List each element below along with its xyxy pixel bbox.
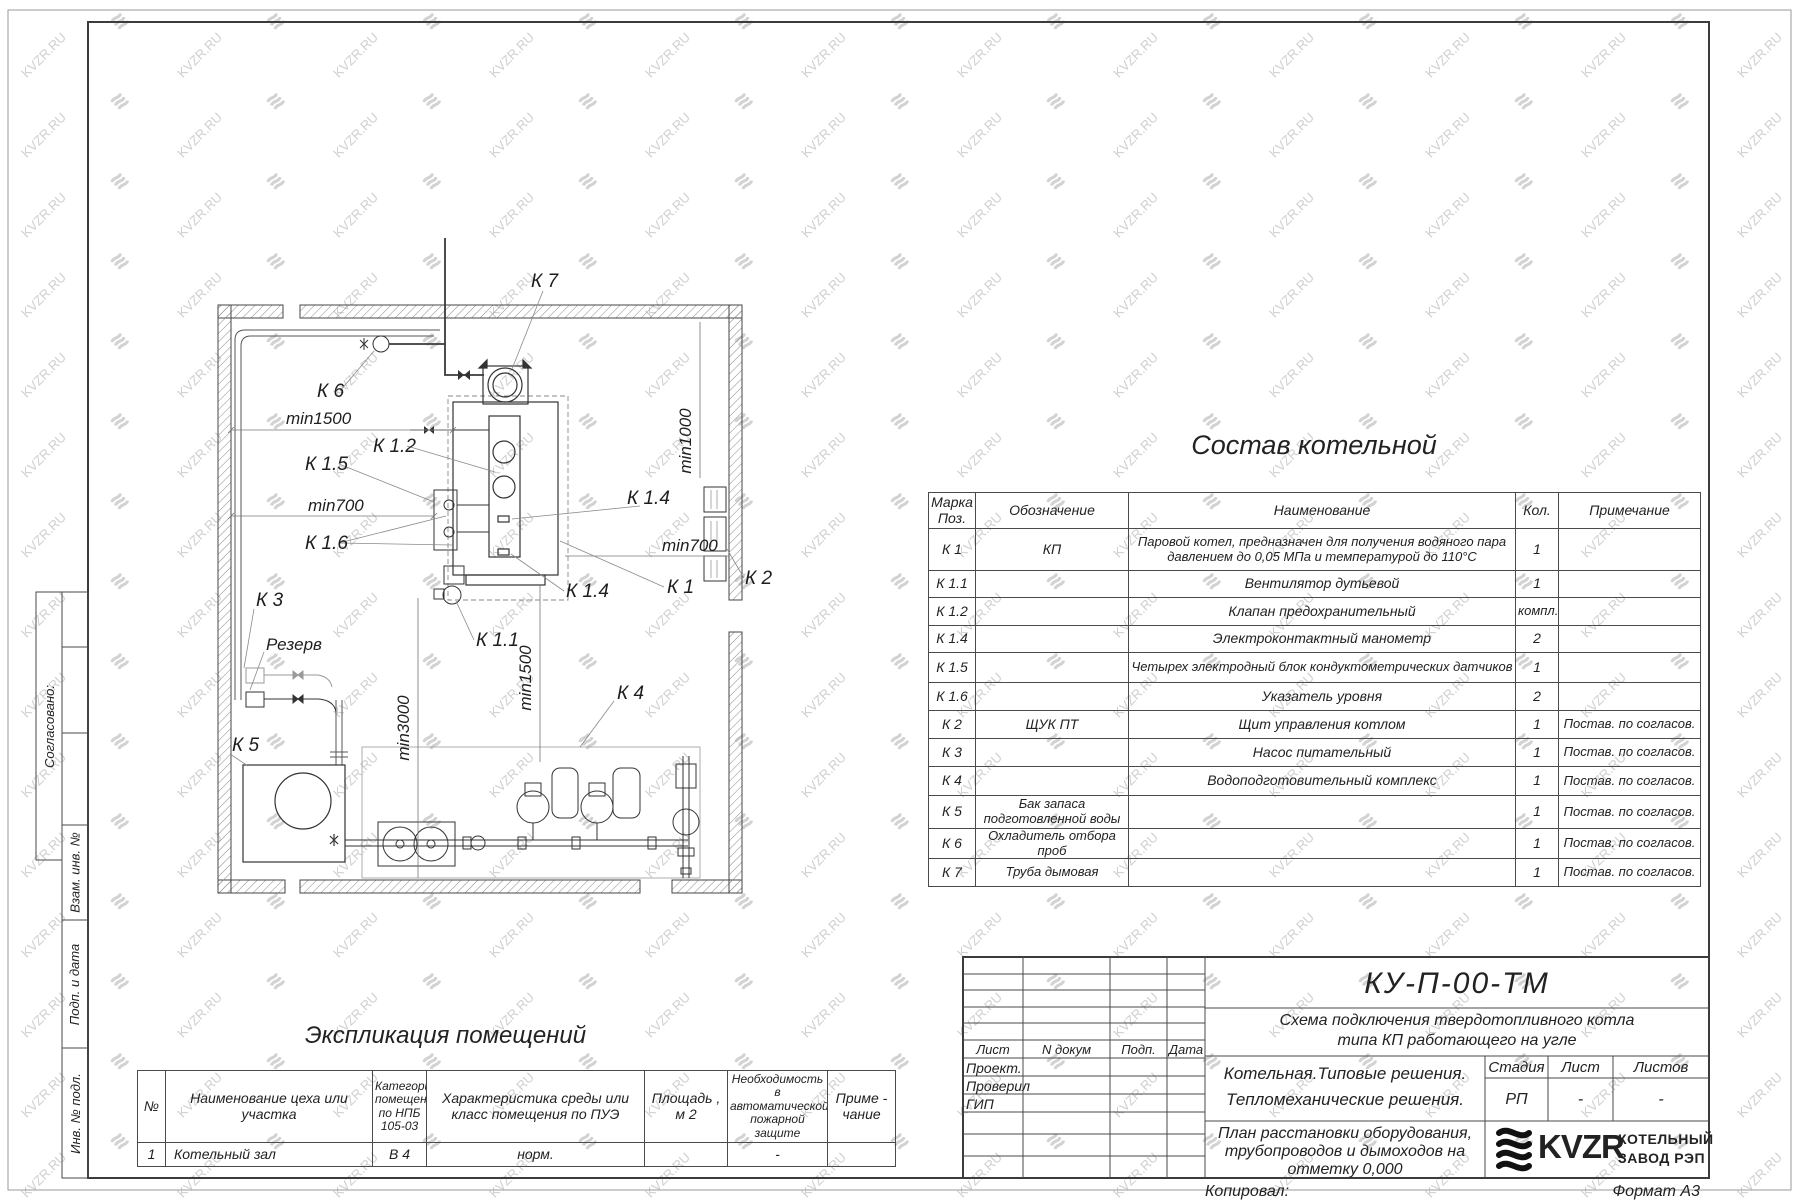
explication-table: № Наименование цеха или участка Категори…	[137, 1070, 896, 1167]
object-line1: Котельная.Типовые решения.	[1205, 1064, 1485, 1084]
col-header: Площадь , м 2	[645, 1071, 728, 1143]
brand-line1: КОТЕЛЬНЫЙ	[1618, 1131, 1714, 1149]
plan-label: К 2	[745, 568, 772, 589]
plan-label: К 1.5	[305, 454, 348, 475]
table-row: К 1.6Указатель уровня2	[929, 683, 1701, 711]
kvzr-logo-icon	[1494, 1127, 1536, 1173]
col-header: Характеристика среды или класс помещения…	[427, 1071, 645, 1143]
table-row: К 4Водоподготовительный комплекс1Постав.…	[929, 767, 1701, 796]
plan-label: К 6	[317, 381, 344, 402]
col-header: Примечание	[1559, 493, 1701, 529]
scheme-title-line2: типа КП работающего на угле	[1205, 1031, 1709, 1050]
plan-dimension: min1500	[516, 645, 535, 711]
water-tank	[243, 765, 345, 862]
format-label: Формат А3	[1560, 1182, 1700, 1201]
explication-title: Экспликация помещений	[305, 1022, 586, 1050]
stage-value: РП	[1485, 1090, 1548, 1109]
col-header: Приме - чание	[828, 1071, 896, 1143]
role-gip: ГИП	[966, 1096, 994, 1113]
sheet-title-line3: отметку 0,000	[1205, 1160, 1485, 1179]
table-row: К 2ЩУК ПТЩит управления котлом1Постав. п…	[929, 711, 1701, 739]
col-header: Необходимость в автоматической пожарной …	[728, 1071, 828, 1143]
vzam-label: Взам. инв. №	[68, 832, 83, 912]
role-project: Проект.	[966, 1060, 1022, 1077]
col-header: Наименование	[1129, 493, 1516, 529]
plan-label: К 1.1	[476, 630, 519, 651]
table-row: К 5Бак запаса подготовленной воды1Постав…	[929, 796, 1701, 829]
logo-wordmark: KVZR	[1538, 1126, 1624, 1167]
plan-label: К 1.4	[566, 581, 609, 602]
table-row: К 7Труба дымовая1Постав. по согласов.	[929, 859, 1701, 887]
plan-dimension: min700	[662, 536, 718, 555]
table-row: К 1.4Электроконтактный манометр2	[929, 626, 1701, 653]
col-header: Категория помещения по НПБ 105-03	[373, 1071, 427, 1143]
fan	[434, 566, 464, 604]
composition-title: Состав котельной	[928, 430, 1700, 461]
brand-line2: ЗАВОД РЭП	[1618, 1150, 1705, 1168]
doc-number: КУ-П-00-ТМ	[1205, 966, 1709, 1002]
explication-header-row: № Наименование цеха или участка Категори…	[138, 1071, 896, 1143]
clearance-outline	[448, 396, 568, 600]
composition-header-row: Марка Поз. Обозначение Наименование Кол.…	[929, 493, 1701, 529]
plan-dimension: min1000	[676, 408, 695, 474]
plan-dimension: min1500	[286, 409, 352, 428]
floor-plan: К 7 К 6 min1500 К 1.2 К 1.5 min700 К 1.6…	[140, 215, 860, 935]
object-line2: Тепломеханические решения.	[1205, 1090, 1485, 1110]
composition-table: Марка Поз. Обозначение Наименование Кол.…	[928, 492, 1701, 887]
plan-label: К 5	[232, 735, 259, 756]
col-podp: Подп.	[1110, 1042, 1167, 1058]
role-checked: Проверил	[966, 1078, 1030, 1095]
table-row: К 1.2Клапан предохранительныйкомпл.	[929, 598, 1701, 626]
table-row: К 6Охладитель отбора проб1Постав. по сог…	[929, 829, 1701, 859]
col-header: Обозначение	[976, 493, 1129, 529]
walls	[218, 305, 742, 893]
plan-label: Резерв	[266, 635, 322, 654]
sheets-value: -	[1613, 1090, 1709, 1109]
control-panels	[704, 487, 726, 581]
plan-label: К 1.4	[627, 488, 670, 509]
water-treatment	[345, 756, 699, 878]
copied-label: Копировал:	[1205, 1182, 1289, 1201]
col-header: Кол.	[1516, 493, 1559, 529]
plan-dimension: min3000	[394, 695, 413, 761]
sidebar-cell-inv: Инв. № подл.	[62, 1048, 88, 1178]
sheet-header: Лист	[1548, 1059, 1613, 1077]
sensor-panel	[410, 430, 489, 550]
sidebar-cell-vzam: Взам. инв. №	[62, 825, 88, 920]
plan-label: К 7	[531, 271, 559, 292]
plan-label: К 3	[256, 590, 283, 611]
sheet-value: -	[1548, 1090, 1613, 1109]
plan-label: К 1.2	[373, 436, 416, 457]
podp-label: Подп. и дата	[68, 943, 83, 1024]
table-row: К 1.5Четырех электродный блок кондуктоме…	[929, 653, 1701, 683]
col-header: №	[138, 1071, 166, 1143]
sheet-title-line1: План расстановки оборудования,	[1205, 1124, 1485, 1143]
plan-label: К 1.6	[305, 533, 348, 554]
sidebar-cell-podp: Подп. и дата	[62, 920, 88, 1048]
plan-dimension: min700	[308, 496, 364, 515]
stage-header: Стадия	[1485, 1059, 1548, 1077]
table-row: К 3Насос питательный1Постав. по согласов…	[929, 739, 1701, 767]
col-header: Марка Поз.	[929, 493, 976, 529]
plan-label: К 1	[667, 577, 694, 598]
dimension-lines	[228, 322, 729, 878]
approved-label: Согласовано:	[42, 685, 57, 768]
table-row: К 1КППаровой котел, предназначен для пол…	[929, 529, 1701, 571]
plan-label: К 4	[617, 683, 644, 704]
col-header: Наименование цеха или участка	[166, 1071, 373, 1143]
table-row: 1 Котельный зал В 4 норм. -	[138, 1143, 896, 1167]
boiler	[453, 360, 558, 585]
col-data: Дата	[1167, 1042, 1205, 1058]
col-ndoc: N докум	[1023, 1042, 1110, 1058]
sample-cooler	[360, 336, 389, 352]
scheme-title-line1: Схема подключения твердотопливного котла	[1205, 1011, 1709, 1030]
sidebar-cell-approved: Согласовано:	[36, 592, 62, 860]
blueprint-sheet: { "watermark": { "text": "KVZR.RU" }, "s…	[0, 0, 1800, 1200]
equipment-zone	[362, 747, 700, 878]
sheet-title-line2: трубопроводов и дымоходов на	[1205, 1142, 1485, 1161]
feed-pumps	[246, 668, 336, 712]
inv-label: Инв. № подл.	[68, 1073, 83, 1154]
col-list: Лист	[963, 1042, 1023, 1058]
sheets-header: Листов	[1613, 1059, 1709, 1077]
table-row: К 1.1Вентилятор дутьевой1	[929, 571, 1701, 598]
